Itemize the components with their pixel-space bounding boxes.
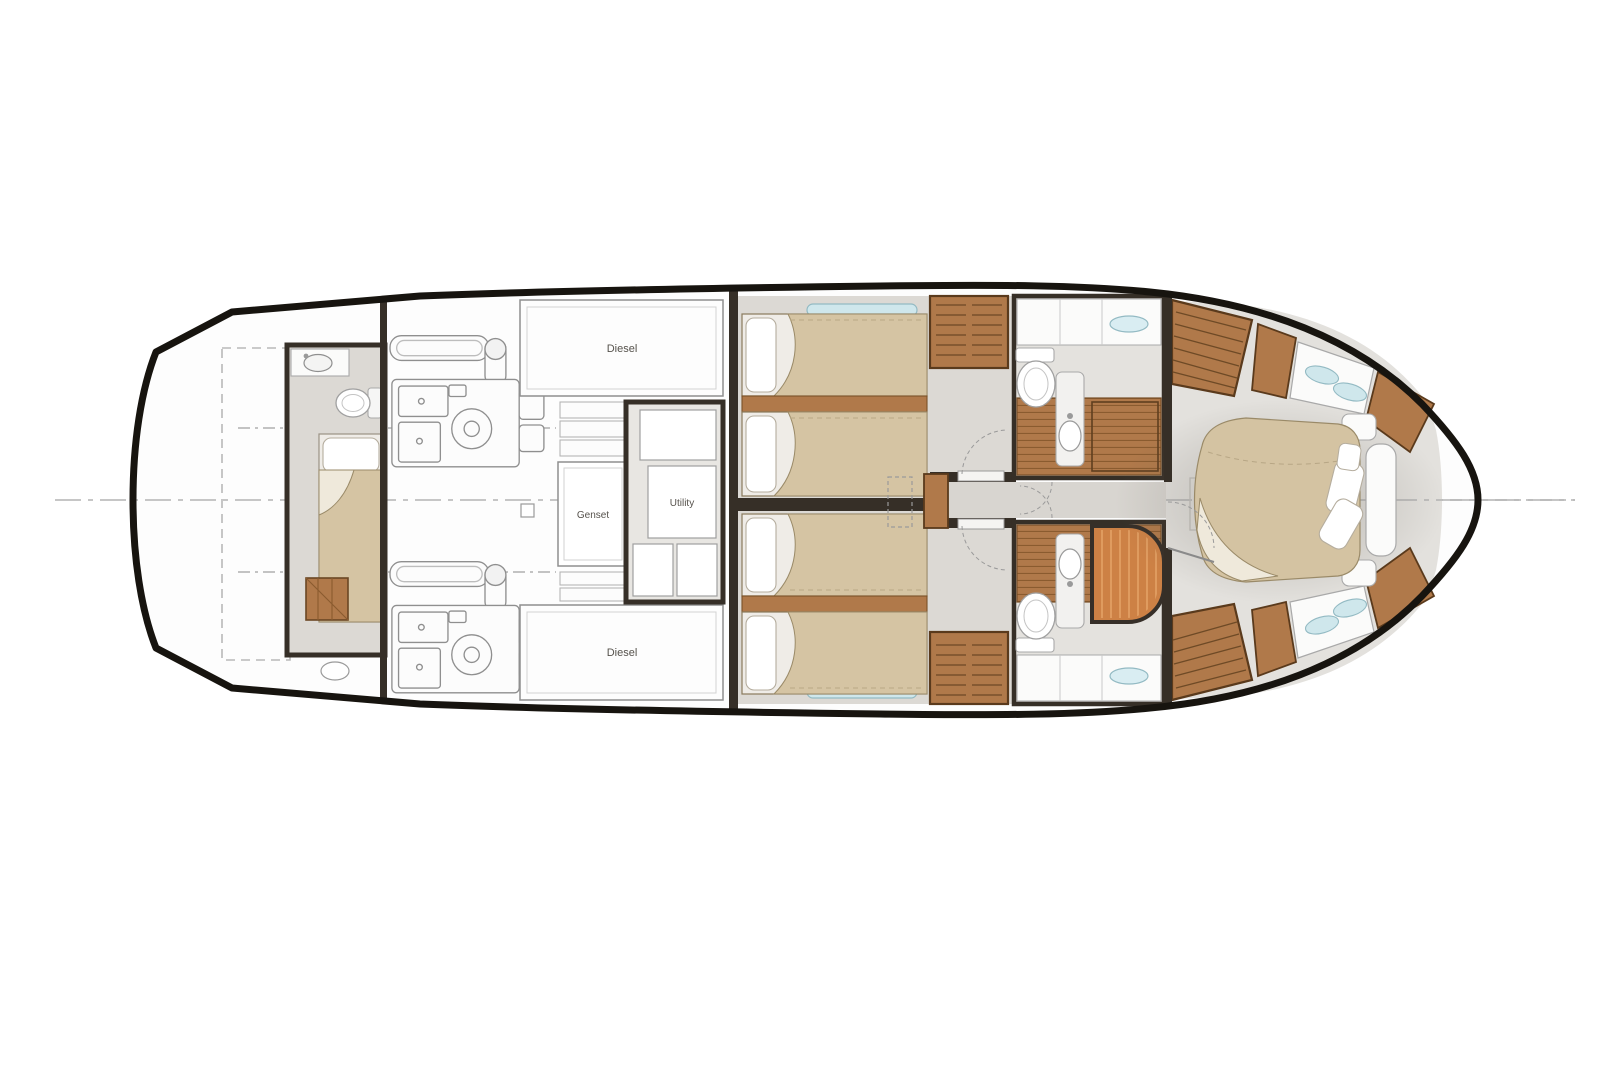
pedestal-sink — [1056, 372, 1084, 466]
genset-box: Genset — [558, 462, 628, 566]
utility-shelf — [633, 544, 673, 596]
headboard — [1366, 444, 1396, 556]
genset-label: Genset — [577, 510, 609, 521]
utility-shelf — [640, 410, 716, 460]
cabin-divider-wall — [734, 498, 930, 511]
crew-cabin — [287, 345, 385, 655]
bulkhead-crew-engine — [380, 298, 387, 702]
toilet — [1016, 348, 1055, 407]
fuel-tank-upper-label: Diesel — [607, 343, 638, 355]
pedestal-sink — [1056, 534, 1084, 628]
between-bed-shelf — [742, 396, 927, 412]
floor-plan-canvas: Diesel Diesel Genset Utili — [0, 0, 1620, 1080]
master-bulkhead-upper — [1164, 296, 1172, 482]
twin-cabin-lower — [738, 502, 1014, 704]
cabin-door-leaf — [958, 471, 1004, 481]
master-cabin — [1115, 300, 1575, 700]
cabin-steps — [930, 296, 1008, 368]
corridor-column — [924, 474, 948, 528]
cabin-steps — [930, 632, 1008, 704]
crew-toilet — [336, 388, 382, 418]
twin-bed — [742, 314, 927, 396]
cabin-door-leaf — [958, 519, 1004, 529]
fuel-tank-lower: Diesel — [520, 605, 723, 700]
vanity-sink — [1110, 316, 1148, 332]
toilet — [1016, 593, 1055, 652]
twin-bed — [742, 612, 927, 694]
between-bed-shelf — [742, 596, 927, 612]
twin-bed — [742, 412, 927, 496]
twin-cabin-upper — [738, 296, 1014, 498]
crew-bed-pillow — [323, 438, 379, 472]
crew-sink — [291, 349, 349, 376]
floor-hatch-marker — [521, 504, 534, 517]
vanity-sink — [1110, 668, 1148, 684]
utility-room: Utility — [626, 402, 723, 602]
utility-label: Utility — [670, 498, 694, 509]
master-bed — [1195, 414, 1397, 586]
fuel-tank-upper: Diesel — [520, 300, 723, 396]
fuel-tank-lower-label: Diesel — [607, 647, 638, 659]
master-cushion — [1336, 443, 1361, 472]
floor-plan-svg: Diesel Diesel Genset Utili — [0, 0, 1620, 1080]
aft-deck-hatch — [321, 662, 349, 680]
crew-step-locker — [306, 578, 348, 620]
twin-bed — [742, 514, 927, 596]
master-bulkhead-lower — [1164, 548, 1172, 704]
utility-shelf — [677, 544, 717, 596]
